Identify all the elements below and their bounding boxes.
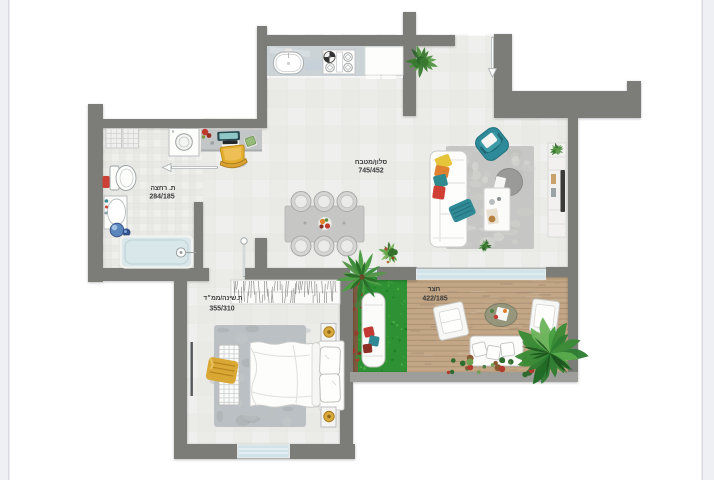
svg-text:ת. רחצה: ת. רחצה — [150, 185, 175, 192]
svg-text:284/185: 284/185 — [149, 194, 174, 201]
svg-text:355/310: 355/310 — [209, 306, 234, 313]
svg-text:ת.שינה/ממ״ד: ת.שינה/ממ״ד — [203, 295, 243, 302]
svg-text:422/185: 422/185 — [422, 296, 447, 303]
svg-text:סלון/מטבח: סלון/מטבח — [355, 158, 388, 166]
svg-text:חצר: חצר — [428, 286, 441, 293]
svg-text:745/452: 745/452 — [358, 168, 383, 175]
